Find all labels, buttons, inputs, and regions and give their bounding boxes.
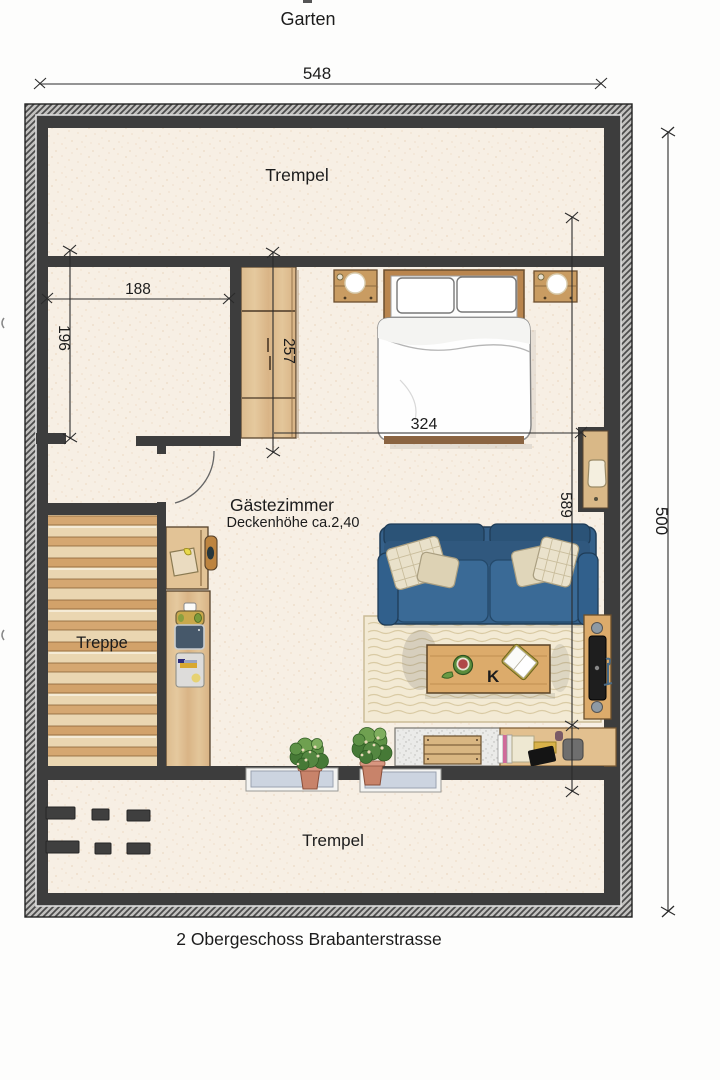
svg-text:Trempel: Trempel xyxy=(265,165,329,185)
svg-text:196: 196 xyxy=(55,325,72,351)
svg-text:2 Obergeschoss Brabanterstrass: 2 Obergeschoss Brabanterstrasse xyxy=(176,929,442,949)
svg-text:Gästezimmer: Gästezimmer xyxy=(230,495,334,515)
svg-text:324: 324 xyxy=(411,416,438,433)
svg-text:257: 257 xyxy=(280,338,297,364)
svg-text:Garten: Garten xyxy=(280,9,335,29)
svg-text:589: 589 xyxy=(557,492,574,518)
svg-text:548: 548 xyxy=(303,64,331,83)
svg-text:Treppe: Treppe xyxy=(76,634,128,652)
svg-text:500: 500 xyxy=(652,507,671,535)
svg-text:Deckenhöhe ca.2,40: Deckenhöhe ca.2,40 xyxy=(226,515,359,531)
svg-text:188: 188 xyxy=(125,281,151,298)
svg-text:Trempel: Trempel xyxy=(302,831,364,850)
svg-text:K: K xyxy=(487,667,500,686)
